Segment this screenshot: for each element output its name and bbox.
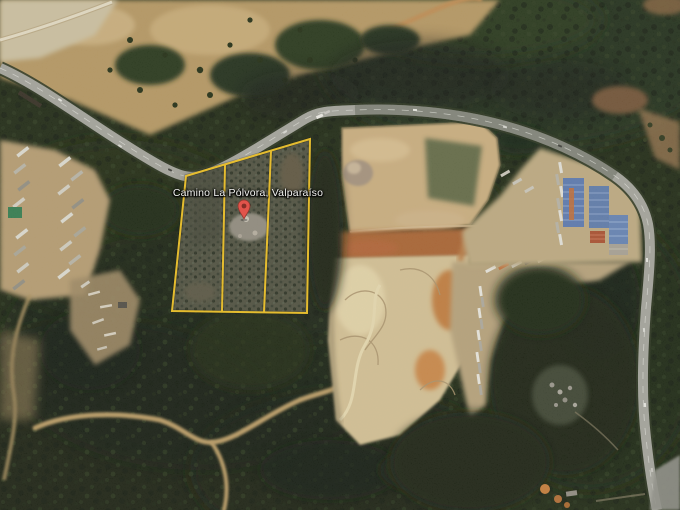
film-grain [0, 0, 680, 510]
satellite-map-canvas[interactable]: Camino La Pólvora, Valparaíso [0, 0, 680, 510]
